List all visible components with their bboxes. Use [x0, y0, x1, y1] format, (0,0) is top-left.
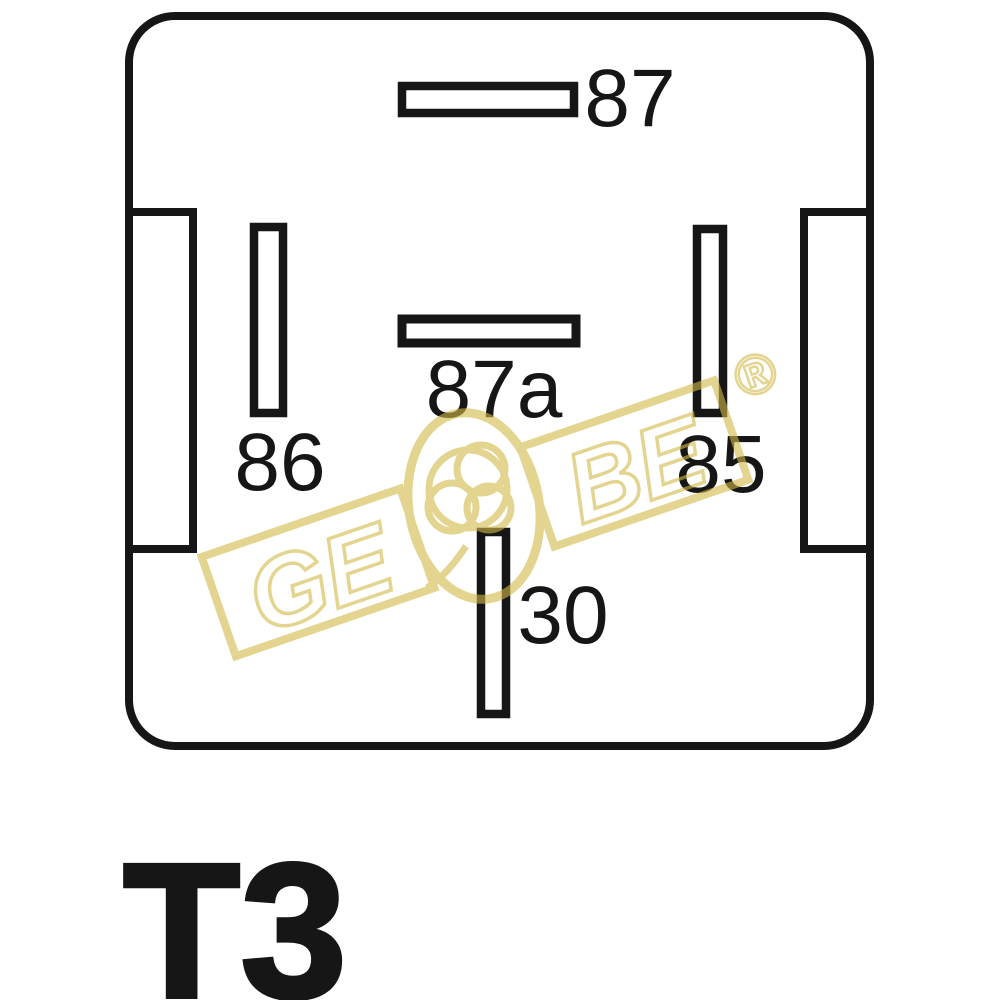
watermark-text-be: BE: [552, 393, 723, 545]
relay-pinout-diagram: 87 87a 86 85 30 GE BE ® T3: [0, 0, 1000, 1000]
watermark-registered-icon: ®: [726, 338, 786, 411]
watermark-text-ge: GE: [234, 501, 410, 655]
watermark-fan-emblem: [394, 402, 555, 610]
relay-type-label: T3: [123, 835, 347, 1000]
